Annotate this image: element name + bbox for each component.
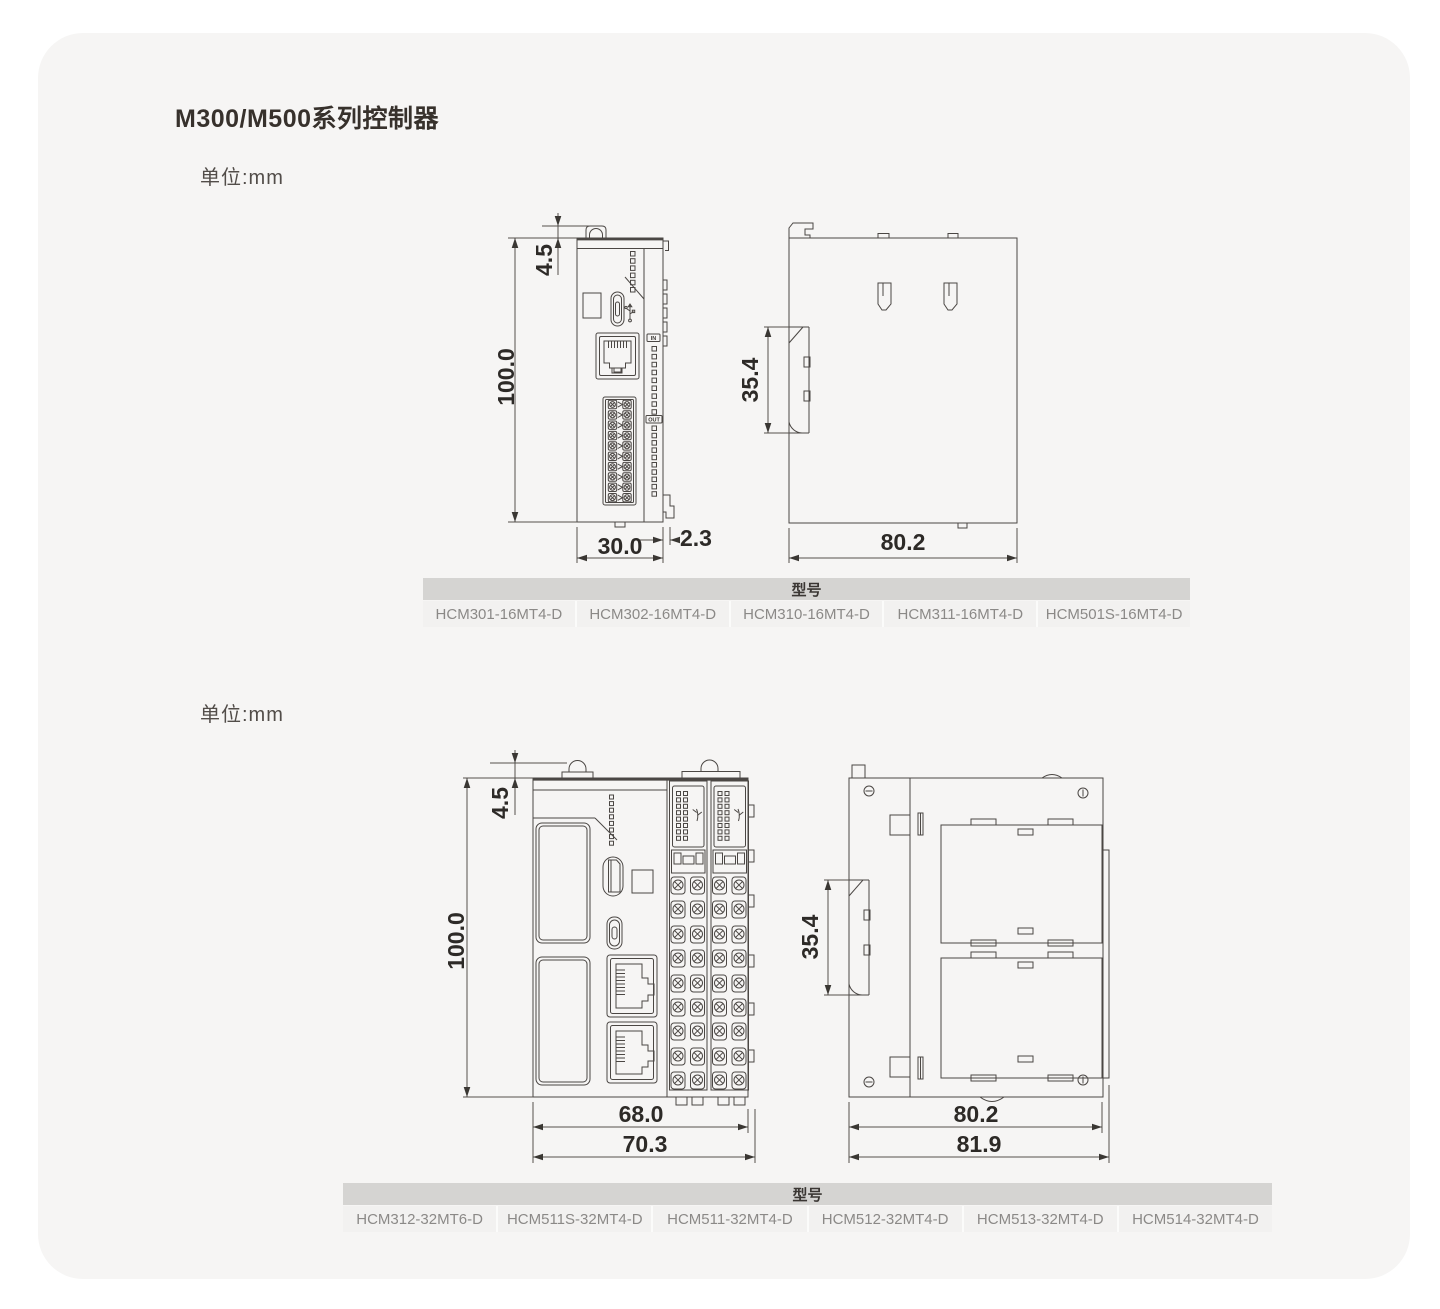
table-row: HCM301-16MT4-D HCM302-16MT4-D HCM310-16M… [423,601,1190,627]
content-card: M300/M500系列控制器 单位:mm 单位:mm [38,33,1410,1279]
dim-width: 30.0 [598,533,643,559]
controller-body [577,226,674,527]
model-table-header: 型号 [343,1183,1272,1205]
front-cover-panels [536,823,590,1085]
dim-total-depth: 81.9 [957,1131,1002,1157]
expansion-knockouts [663,280,667,346]
housing-screws [864,786,1088,1087]
m500-side-view-drawing: 35.4 80.2 81.9 [780,745,1130,1170]
rear-edge [1103,850,1109,1078]
brand-icon [693,809,702,821]
bottom-notch [615,522,625,527]
brand-icon [734,809,743,821]
m300-side-view-drawing: 35.4 80.2 [720,205,1050,570]
dim-din-rail: 35.4 [797,914,823,959]
model-cell: HCM514-32MT4-D [1117,1206,1272,1232]
usb-c-port [611,292,624,326]
status-led-column [610,795,614,845]
din-mount-tab [586,226,606,238]
expansion-bay-lower [941,952,1102,1081]
unit-label: 单位:mm [200,161,284,190]
page-title: M300/M500系列控制器 [175,99,439,135]
din-rail-clip [789,327,810,433]
dim-din-rail: 35.4 [737,357,763,402]
rj45-port-2 [607,1022,657,1083]
model-cell: HCM511S-32MT4-D [496,1206,651,1232]
din-mount-tab-right [682,760,740,778]
unit-label: 单位:mm [200,698,284,727]
dim-depth: 80.2 [881,529,926,555]
io-led-column [646,334,662,496]
dim-lip: 2.3 [680,525,712,551]
bottom-latches [676,1097,745,1105]
dim-tab-offset: 4.5 [487,787,513,819]
dim-depth: 80.2 [954,1101,999,1127]
controller-body [533,760,754,1105]
keying-hooks [878,283,957,310]
model-cell: HCM501S-16MT4-D [1036,601,1190,627]
top-clip [789,223,813,238]
model-table: 型号 HCM301-16MT4-D HCM302-16MT4-D HCM310-… [423,578,1190,627]
model-cell: HCM310-16MT4-D [729,601,883,627]
m500-front-view-drawing: 4.5 100.0 68.0 70.3 [430,745,770,1170]
controller-side-body [789,223,1017,528]
rj45-port [596,333,639,379]
model-cell: HCM512-32MT4-D [807,1206,962,1232]
expansion-knockouts [749,805,755,1062]
expansion-bay-upper [941,819,1102,946]
usb-c-port [607,917,622,949]
rj45-port-1 [607,955,657,1017]
model-cell: HCM311-16MT4-D [882,601,1036,627]
dim-width: 68.0 [619,1101,664,1127]
terminal-module-a [670,781,708,1090]
bottom-notch [958,523,967,528]
din-rail-clip [849,880,870,995]
model-cell: HCM513-32MT4-D [962,1206,1117,1232]
model-cell: HCM302-16MT4-D [575,601,729,627]
in-label: IN [651,336,657,342]
dim-height: 100.0 [443,912,469,970]
dimension-lines [764,327,1017,563]
model-cell: HCM301-16MT4-D [423,601,575,627]
controller-side-body [849,765,1109,1102]
out-label: OUT [648,417,660,423]
model-table-header: 型号 [423,578,1190,600]
top-hook [663,241,669,251]
model-table: 型号 HCM312-32MT6-D HCM511S-32MT4-D HCM511… [343,1183,1272,1232]
sd-card-slot [603,857,623,896]
reset-window [632,870,653,893]
model-cell: HCM312-32MT6-D [343,1206,496,1232]
table-row: HCM312-32MT6-D HCM511S-32MT4-D HCM511-32… [343,1206,1272,1232]
model-cell: HCM511-32MT4-D [651,1206,806,1232]
dim-tab-offset: 4.5 [531,244,557,276]
label-window [583,293,601,318]
dim-total-width: 70.3 [623,1131,668,1157]
usb-icon [625,304,635,322]
din-clip-hook [663,495,674,518]
m300-front-view-drawing: IN OUT 4.5 100.0 30.0 2.3 [480,205,720,570]
top-clip [852,765,865,778]
dim-height: 100.0 [493,348,519,406]
terminal-block [603,397,636,505]
terminal-screws [671,877,746,1089]
terminal-module-b [711,781,749,1090]
